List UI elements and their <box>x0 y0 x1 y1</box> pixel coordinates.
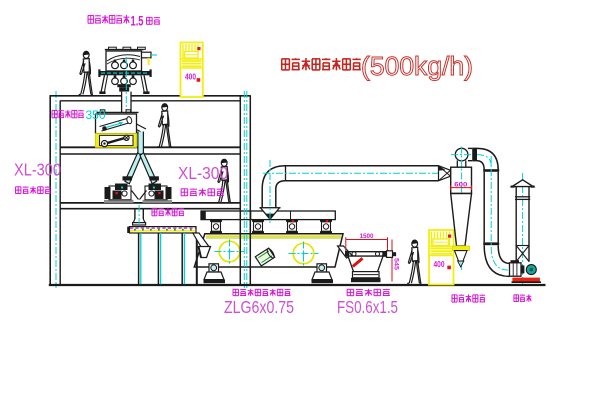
svg-text:(500kg/h): (500kg/h) <box>361 53 473 81</box>
svg-text:XL-300: XL-300 <box>178 163 228 183</box>
svg-text:FS0.6x1.5: FS0.6x1.5 <box>337 297 398 317</box>
svg-text:1.5: 1.5 <box>131 14 144 29</box>
svg-text:400: 400 <box>434 260 445 269</box>
svg-text:400: 400 <box>185 73 196 82</box>
svg-text:545: 545 <box>393 258 400 270</box>
svg-text:350: 350 <box>86 110 106 122</box>
svg-text:XL-300: XL-300 <box>14 160 61 180</box>
svg-text:600: 600 <box>454 182 468 189</box>
svg-text:1500: 1500 <box>360 233 374 240</box>
svg-text:ZLG6x0.75: ZLG6x0.75 <box>224 297 294 317</box>
